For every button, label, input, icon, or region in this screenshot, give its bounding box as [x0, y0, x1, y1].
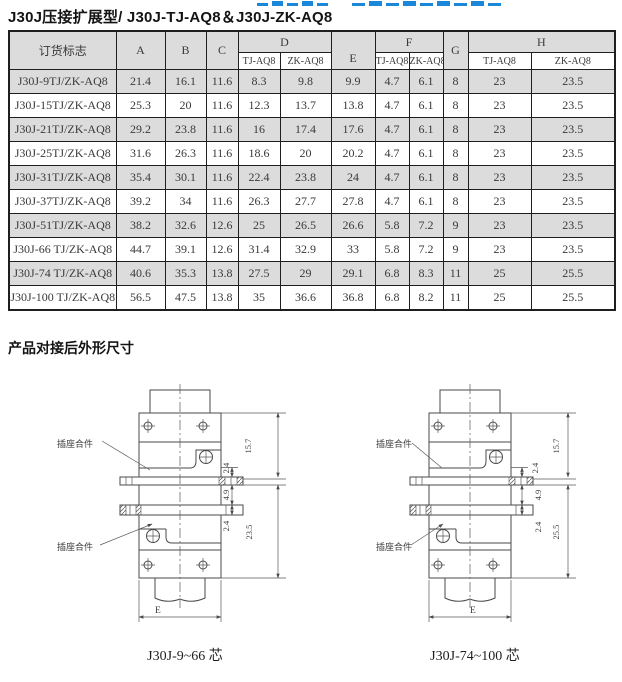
part-label-socket-bottom-right: 插座合件 — [376, 541, 412, 552]
order-mark-cell: J30J-100 TJ/ZK-AQ8 — [9, 286, 116, 311]
value-cell: 6.1 — [409, 190, 443, 214]
table-row: J30J-9TJ/ZK-AQ821.416.111.68.39.89.94.76… — [9, 70, 615, 94]
value-cell: 25 — [238, 214, 280, 238]
value-cell: 24 — [331, 166, 375, 190]
value-cell: 25 — [468, 262, 531, 286]
value-cell: 4.7 — [375, 118, 409, 142]
value-cell: 47.5 — [165, 286, 206, 311]
value-cell: 23.5 — [531, 142, 615, 166]
value-cell: 23 — [468, 142, 531, 166]
value-cell: 11.6 — [206, 142, 238, 166]
value-cell: 35 — [238, 286, 280, 311]
value-cell: 32.9 — [280, 238, 331, 262]
value-cell: 23.5 — [531, 190, 615, 214]
dim-2_4-lower-left: 2.4 — [221, 520, 231, 531]
subcol-f-tj: TJ-AQ8 — [375, 53, 409, 70]
value-cell: 29.2 — [116, 118, 165, 142]
value-cell: 5.8 — [375, 214, 409, 238]
value-cell: 23 — [468, 214, 531, 238]
value-cell: 4.7 — [375, 190, 409, 214]
leader-line — [102, 441, 150, 470]
value-cell: 16 — [238, 118, 280, 142]
value-cell: 26.6 — [331, 214, 375, 238]
col-header-d: D — [238, 31, 331, 53]
col-header-b: B — [165, 31, 206, 70]
value-cell: 16.1 — [165, 70, 206, 94]
value-cell: 23.8 — [165, 118, 206, 142]
value-cell: 8 — [443, 190, 468, 214]
subcol-f-zk: ZK-AQ8 — [409, 53, 443, 70]
value-cell: 7.2 — [409, 238, 443, 262]
value-cell: 8.3 — [409, 262, 443, 286]
value-cell: 6.1 — [409, 94, 443, 118]
order-mark-cell: J30J-51TJ/ZK-AQ8 — [9, 214, 116, 238]
subcol-d-tj: TJ-AQ8 — [238, 53, 280, 70]
dim-2_4-upper-right: 2.4 — [530, 462, 540, 473]
spec-table: 订货标志 A B C D E F G H TJ-AQ8 ZK-AQ8 TJ-AQ… — [8, 30, 616, 311]
value-cell: 29.1 — [331, 262, 375, 286]
dim-2_4-upper-left: 2.4 — [221, 462, 231, 473]
caption-left: J30J-9~66 芯 — [95, 645, 275, 665]
value-cell: 6.1 — [409, 118, 443, 142]
value-cell: 20 — [280, 142, 331, 166]
value-cell: 26.3 — [238, 190, 280, 214]
value-cell: 25.5 — [531, 286, 615, 311]
value-cell: 27.8 — [331, 190, 375, 214]
order-mark-cell: J30J-31TJ/ZK-AQ8 — [9, 166, 116, 190]
order-mark-cell: J30J-37TJ/ZK-AQ8 — [9, 190, 116, 214]
leader-line — [411, 524, 443, 545]
value-cell: 11 — [443, 286, 468, 311]
value-cell: 6.8 — [375, 262, 409, 286]
spec-table-header: 订货标志 A B C D E F G H TJ-AQ8 ZK-AQ8 TJ-AQ… — [9, 31, 615, 70]
table-row: J30J-51TJ/ZK-AQ838.232.612.62526.526.65.… — [9, 214, 615, 238]
value-cell: 26.3 — [165, 142, 206, 166]
table-row: J30J-21TJ/ZK-AQ829.223.811.61617.417.64.… — [9, 118, 615, 142]
col-header-a: A — [116, 31, 165, 70]
col-header-e: E — [331, 31, 375, 70]
value-cell: 36.6 — [280, 286, 331, 311]
value-cell: 23 — [468, 118, 531, 142]
value-cell: 23.5 — [531, 70, 615, 94]
dim-4_9-right: 4.9 — [533, 490, 543, 501]
col-header-h: H — [468, 31, 615, 53]
order-mark-cell: J30J-74 TJ/ZK-AQ8 — [9, 262, 116, 286]
table-row: J30J-31TJ/ZK-AQ835.430.111.622.423.8244.… — [9, 166, 615, 190]
value-cell: 7.2 — [409, 214, 443, 238]
subcol-h-zk: ZK-AQ8 — [531, 53, 615, 70]
value-cell: 6.1 — [409, 70, 443, 94]
value-cell: 33 — [331, 238, 375, 262]
value-cell: 9.9 — [331, 70, 375, 94]
section-title: 产品对接后外形尺寸 — [8, 338, 134, 358]
value-cell: 8 — [443, 166, 468, 190]
order-mark-cell: J30J-25TJ/ZK-AQ8 — [9, 142, 116, 166]
dim-4_9-left: 4.9 — [221, 490, 231, 501]
value-cell: 11.6 — [206, 166, 238, 190]
value-cell: 9 — [443, 214, 468, 238]
value-cell: 12.6 — [206, 238, 238, 262]
value-cell: 22.4 — [238, 166, 280, 190]
value-cell: 23 — [468, 70, 531, 94]
value-cell: 5.8 — [375, 238, 409, 262]
value-cell: 21.4 — [116, 70, 165, 94]
value-cell: 30.1 — [165, 166, 206, 190]
order-mark-cell: J30J-21TJ/ZK-AQ8 — [9, 118, 116, 142]
value-cell: 44.7 — [116, 238, 165, 262]
subcol-h-tj: TJ-AQ8 — [468, 53, 531, 70]
value-cell: 38.2 — [116, 214, 165, 238]
value-cell: 13.8 — [206, 286, 238, 311]
table-row: J30J-74 TJ/ZK-AQ840.635.313.827.52929.16… — [9, 262, 615, 286]
value-cell: 40.6 — [116, 262, 165, 286]
value-cell: 9 — [443, 238, 468, 262]
value-cell: 12.6 — [206, 214, 238, 238]
value-cell: 20.2 — [331, 142, 375, 166]
value-cell: 8 — [443, 94, 468, 118]
value-cell: 13.8 — [331, 94, 375, 118]
value-cell: 27.7 — [280, 190, 331, 214]
table-row: J30J-37TJ/ZK-AQ839.23411.626.327.727.84.… — [9, 190, 615, 214]
value-cell: 35.3 — [165, 262, 206, 286]
col-header-g: G — [443, 31, 468, 70]
value-cell: 8 — [443, 70, 468, 94]
dim-15_7-right: 15.7 — [551, 439, 561, 454]
order-mark-cell: J30J-66 TJ/ZK-AQ8 — [9, 238, 116, 262]
value-cell: 25.5 — [531, 262, 615, 286]
value-cell: 39.1 — [165, 238, 206, 262]
dim-e-left: E — [155, 606, 161, 616]
value-cell: 8 — [443, 142, 468, 166]
value-cell: 13.8 — [206, 262, 238, 286]
value-cell: 25.3 — [116, 94, 165, 118]
value-cell: 6.1 — [409, 142, 443, 166]
connector-drawing-right — [410, 384, 576, 622]
value-cell: 18.6 — [238, 142, 280, 166]
value-cell: 39.2 — [116, 190, 165, 214]
value-cell: 25 — [468, 286, 531, 311]
value-cell: 8.2 — [409, 286, 443, 311]
value-cell: 23 — [468, 238, 531, 262]
value-cell: 11.6 — [206, 70, 238, 94]
value-cell: 6.8 — [375, 286, 409, 311]
value-cell: 27.5 — [238, 262, 280, 286]
table-row: J30J-25TJ/ZK-AQ831.626.311.618.62020.24.… — [9, 142, 615, 166]
dim-23_5-left: 23.5 — [244, 525, 254, 540]
value-cell: 9.8 — [280, 70, 331, 94]
value-cell: 11.6 — [206, 190, 238, 214]
value-cell: 23 — [468, 190, 531, 214]
value-cell: 23.5 — [531, 118, 615, 142]
col-header-order: 订货标志 — [9, 31, 116, 70]
value-cell: 4.7 — [375, 142, 409, 166]
outline-drawing: 插座合件 插座合件 15.7 2.4 4.9 2.4 23.5 E 插座合件 插… — [0, 382, 622, 627]
value-cell: 23.5 — [531, 94, 615, 118]
leader-line — [100, 524, 152, 545]
value-cell: 11.6 — [206, 118, 238, 142]
page-title: J30J压接扩展型/ J30J-TJ-AQ8＆J30J-ZK-AQ8 — [8, 6, 332, 27]
part-label-socket-top-right: 插座合件 — [376, 438, 412, 449]
value-cell: 36.8 — [331, 286, 375, 311]
value-cell: 20 — [165, 94, 206, 118]
caption-right: J30J-74~100 芯 — [385, 645, 565, 665]
value-cell: 8.3 — [238, 70, 280, 94]
dim-2_4-lower-right: 2.4 — [533, 521, 543, 532]
value-cell: 29 — [280, 262, 331, 286]
value-cell: 8 — [443, 118, 468, 142]
value-cell: 23 — [468, 94, 531, 118]
value-cell: 4.7 — [375, 70, 409, 94]
value-cell: 23 — [468, 166, 531, 190]
value-cell: 31.6 — [116, 142, 165, 166]
part-label-socket-top-left: 插座合件 — [57, 438, 93, 449]
value-cell: 23.5 — [531, 214, 615, 238]
order-mark-cell: J30J-9TJ/ZK-AQ8 — [9, 70, 116, 94]
leader-line — [412, 443, 442, 468]
dim-15_7-left: 15.7 — [243, 439, 253, 454]
col-header-f: F — [375, 31, 443, 53]
value-cell: 56.5 — [116, 286, 165, 311]
spec-table-body: J30J-9TJ/ZK-AQ821.416.111.68.39.89.94.76… — [9, 70, 615, 311]
value-cell: 32.6 — [165, 214, 206, 238]
value-cell: 17.6 — [331, 118, 375, 142]
connector-drawing-left — [120, 384, 286, 622]
value-cell: 23.5 — [531, 238, 615, 262]
value-cell: 11 — [443, 262, 468, 286]
table-row: J30J-66 TJ/ZK-AQ844.739.112.631.432.9335… — [9, 238, 615, 262]
table-row: J30J-100 TJ/ZK-AQ856.547.513.83536.636.8… — [9, 286, 615, 311]
value-cell: 31.4 — [238, 238, 280, 262]
table-row: J30J-15TJ/ZK-AQ825.32011.612.313.713.84.… — [9, 94, 615, 118]
value-cell: 11.6 — [206, 94, 238, 118]
value-cell: 4.7 — [375, 166, 409, 190]
value-cell: 12.3 — [238, 94, 280, 118]
value-cell: 26.5 — [280, 214, 331, 238]
order-mark-cell: J30J-15TJ/ZK-AQ8 — [9, 94, 116, 118]
value-cell: 23.5 — [531, 166, 615, 190]
subcol-d-zk: ZK-AQ8 — [280, 53, 331, 70]
value-cell: 17.4 — [280, 118, 331, 142]
value-cell: 13.7 — [280, 94, 331, 118]
col-header-c: C — [206, 31, 238, 70]
dim-25_5-right: 25.5 — [551, 525, 561, 540]
value-cell: 35.4 — [116, 166, 165, 190]
part-label-socket-bottom-left: 插座合件 — [57, 541, 93, 552]
dim-e-right: E — [470, 606, 476, 616]
value-cell: 4.7 — [375, 94, 409, 118]
value-cell: 23.8 — [280, 166, 331, 190]
value-cell: 34 — [165, 190, 206, 214]
value-cell: 6.1 — [409, 166, 443, 190]
